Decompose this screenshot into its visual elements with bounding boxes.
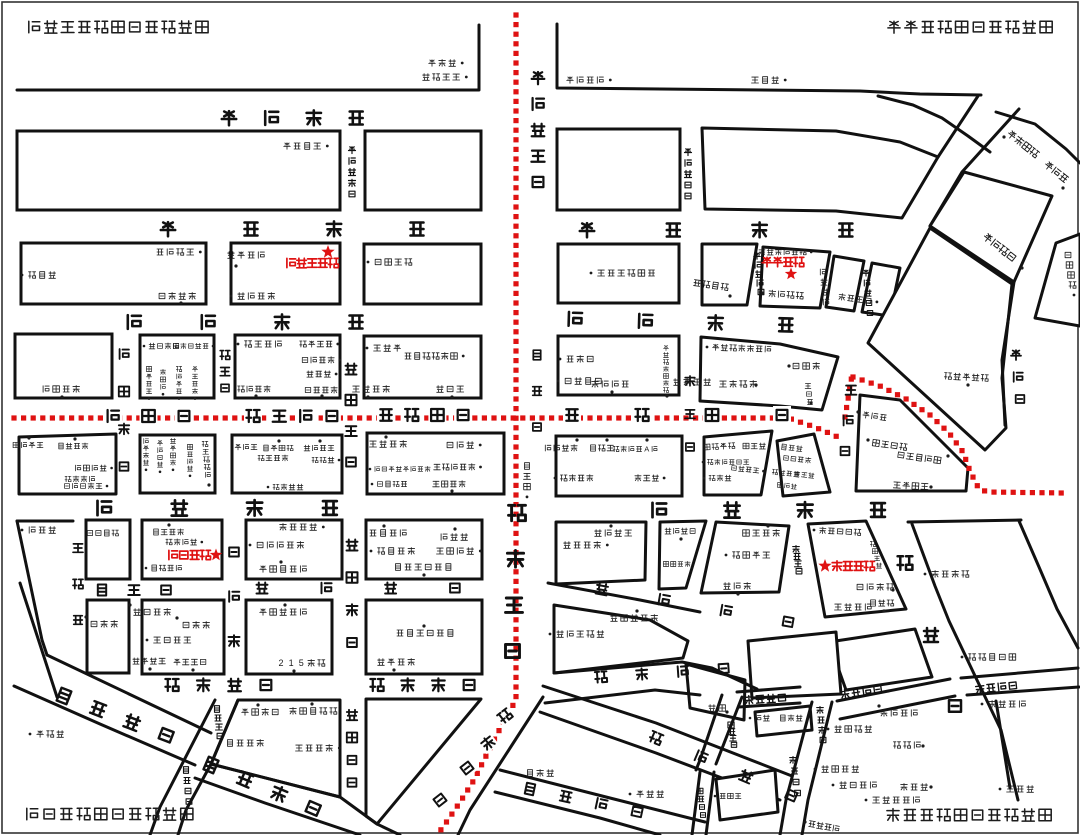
svg-text:5: 5 [299, 658, 304, 668]
svg-text:2: 2 [278, 658, 283, 668]
svg-text:1: 1 [289, 658, 294, 668]
svg-text:A: A [644, 445, 649, 454]
